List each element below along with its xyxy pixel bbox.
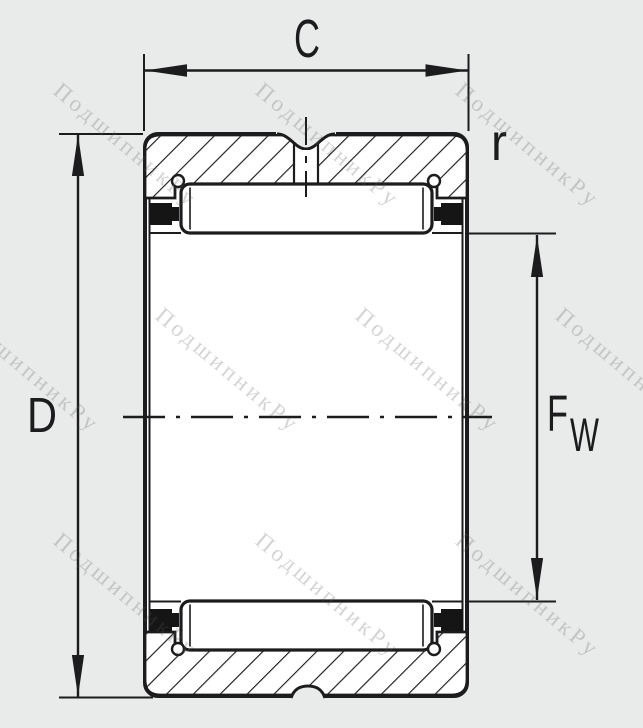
label-Fw-sub: W bbox=[570, 408, 599, 461]
technical-drawing: C D r F W ПодшипникРуПодшипникРуПодшипни… bbox=[0, 0, 643, 728]
bearing-body bbox=[145, 130, 467, 698]
retainer-circle-top-right bbox=[428, 175, 440, 187]
label-Fw-main: F bbox=[547, 385, 568, 442]
retainer-circle-bottom-right bbox=[428, 643, 440, 655]
bearing-drawing-page: C D r F W ПодшипникРуПодшипникРуПодшипни… bbox=[0, 0, 643, 728]
label-C: C bbox=[294, 9, 320, 69]
